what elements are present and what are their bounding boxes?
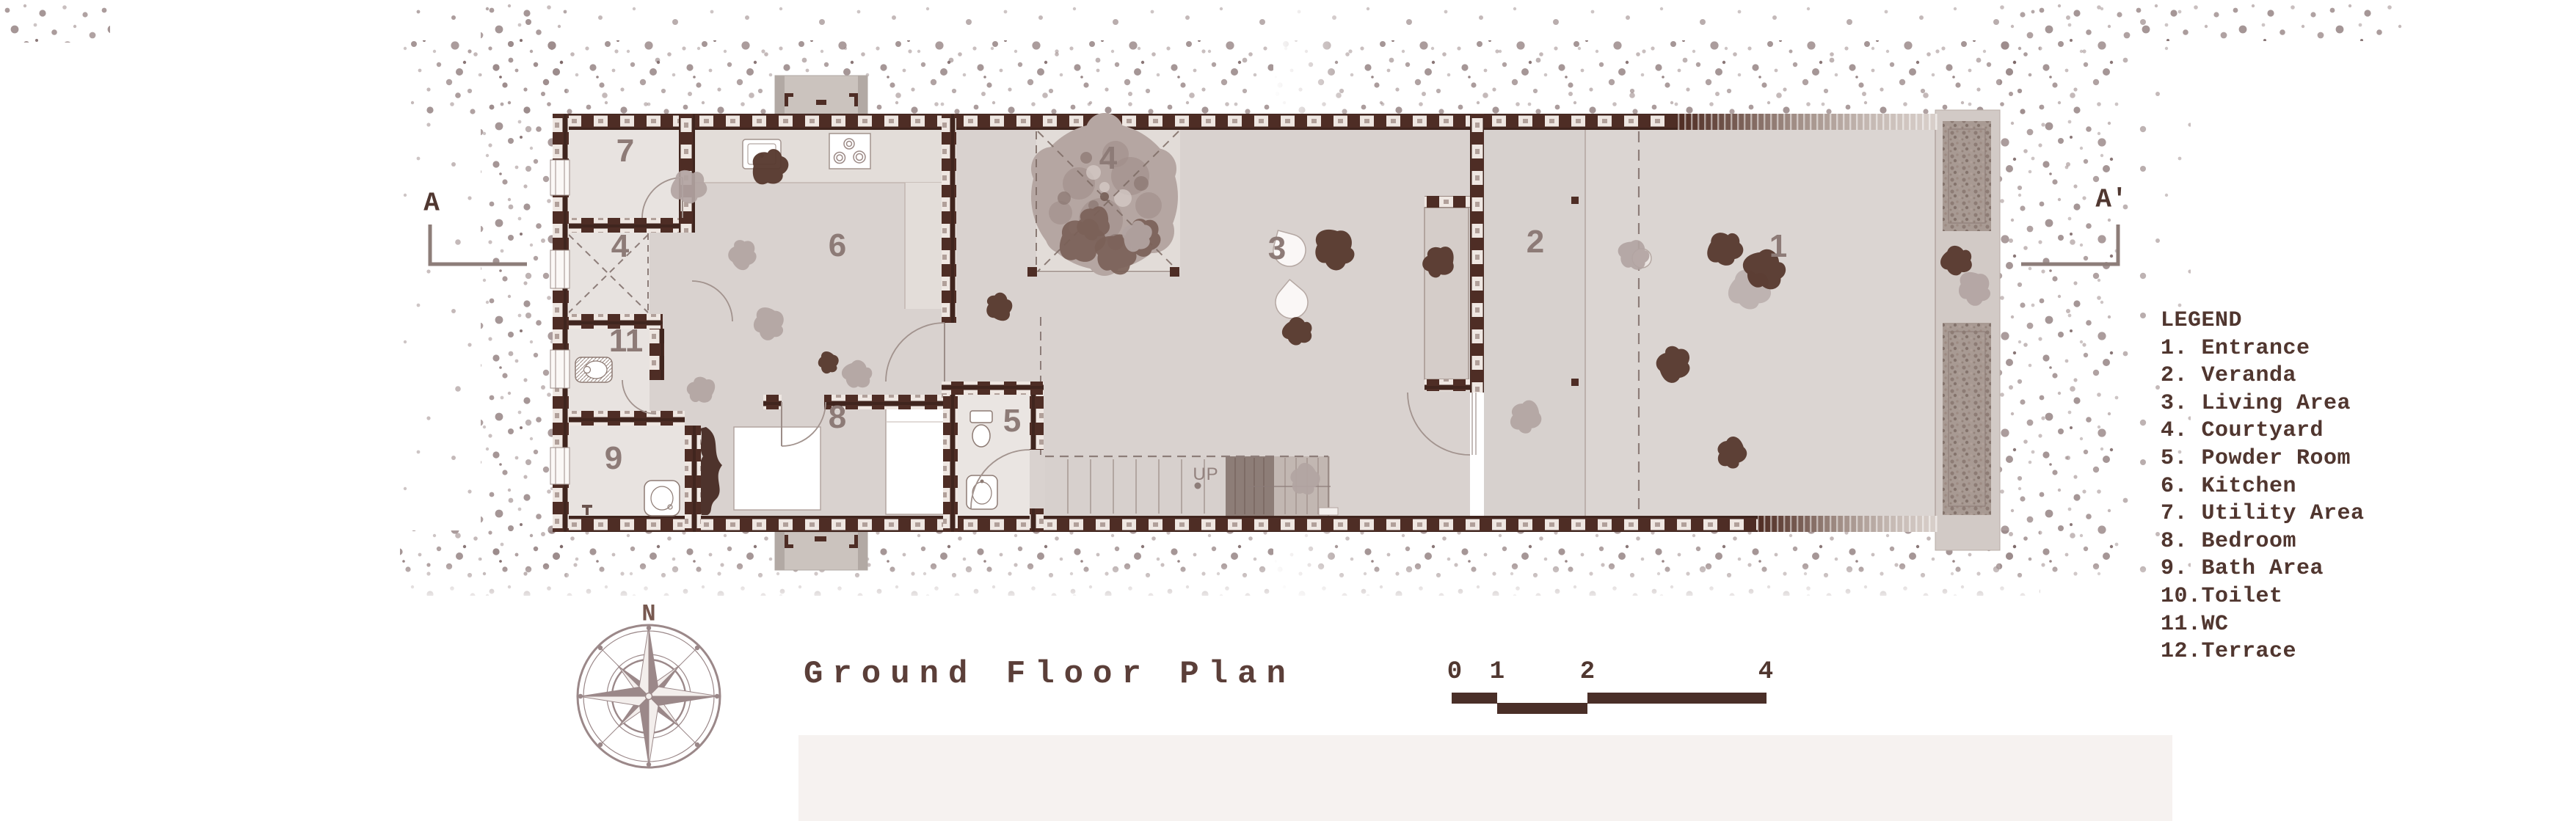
room-label-kitchen: 6 xyxy=(829,227,846,264)
legend-item: 10.Toilet xyxy=(2161,583,2365,611)
legend-item: 3. Living Area xyxy=(2161,390,2365,418)
legend-item: 1. Entrance xyxy=(2161,335,2365,363)
bench xyxy=(1425,208,1469,379)
legend-item: 7. Utility Area xyxy=(2161,500,2365,528)
room-label-tree-courtyard: 4 xyxy=(1099,140,1117,177)
scale-tick-0: 0 xyxy=(1447,658,1462,686)
veranda-slab xyxy=(1484,130,1585,516)
legend-item: 8. Bedroom xyxy=(2161,528,2365,556)
scale-tick-1: 1 xyxy=(1490,658,1505,686)
scale-bar-graphic xyxy=(1452,693,1767,714)
room-label-entrance: 1 xyxy=(1769,228,1787,265)
planter-top xyxy=(1943,121,1991,231)
legend-heading: LEGEND xyxy=(2161,307,2365,335)
floor-plan-sheet: Ground Floor Plan LEGEND 1. Entrance 2. … xyxy=(0,0,2576,821)
legend-item: 4. Courtyard xyxy=(2161,417,2365,445)
scale-tick-2: 2 xyxy=(1580,658,1595,686)
stove xyxy=(829,134,870,169)
legend-item: 2. Veranda xyxy=(2161,362,2365,390)
paper-band xyxy=(798,735,2172,821)
legend-item: 5. Powder Room xyxy=(2161,445,2365,473)
wardrobe xyxy=(734,427,821,510)
section-marker-a: A xyxy=(423,189,440,219)
top-porch xyxy=(775,76,867,114)
legend-item: 6. Kitchen xyxy=(2161,473,2365,501)
room-label-courtyard: 4 xyxy=(611,228,629,265)
wc-toilet xyxy=(575,357,612,382)
room-label-utility: 7 xyxy=(616,133,634,169)
compass-north-label: N xyxy=(641,601,655,628)
drawing-title: Ground Floor Plan xyxy=(804,656,1295,693)
bottom-porch xyxy=(775,532,867,570)
scale-tick-4: 4 xyxy=(1758,658,1773,686)
bath-basin xyxy=(644,481,680,516)
room-label-living: 3 xyxy=(1268,230,1286,267)
legend-item: 9. Bath Area xyxy=(2161,555,2365,583)
room-label-bedroom: 8 xyxy=(829,399,846,436)
building-plan xyxy=(550,76,2000,570)
bed xyxy=(886,400,945,514)
legend-item: 12.Terrace xyxy=(2161,638,2365,666)
compass-rose xyxy=(578,625,720,767)
legend-item: 11.WC xyxy=(2161,611,2365,639)
room-label-bath: 9 xyxy=(605,440,622,477)
section-marker-a-prime: A' xyxy=(2095,185,2127,215)
room-label-powder: 5 xyxy=(1003,403,1021,439)
planter-bottom xyxy=(1943,323,1991,515)
legend: LEGEND 1. Entrance 2. Veranda 3. Living … xyxy=(2161,307,2365,666)
room-label-wc: 11 xyxy=(609,323,644,360)
room-label-veranda: 2 xyxy=(1527,224,1544,260)
stairs-up-label: UP xyxy=(1193,464,1218,485)
